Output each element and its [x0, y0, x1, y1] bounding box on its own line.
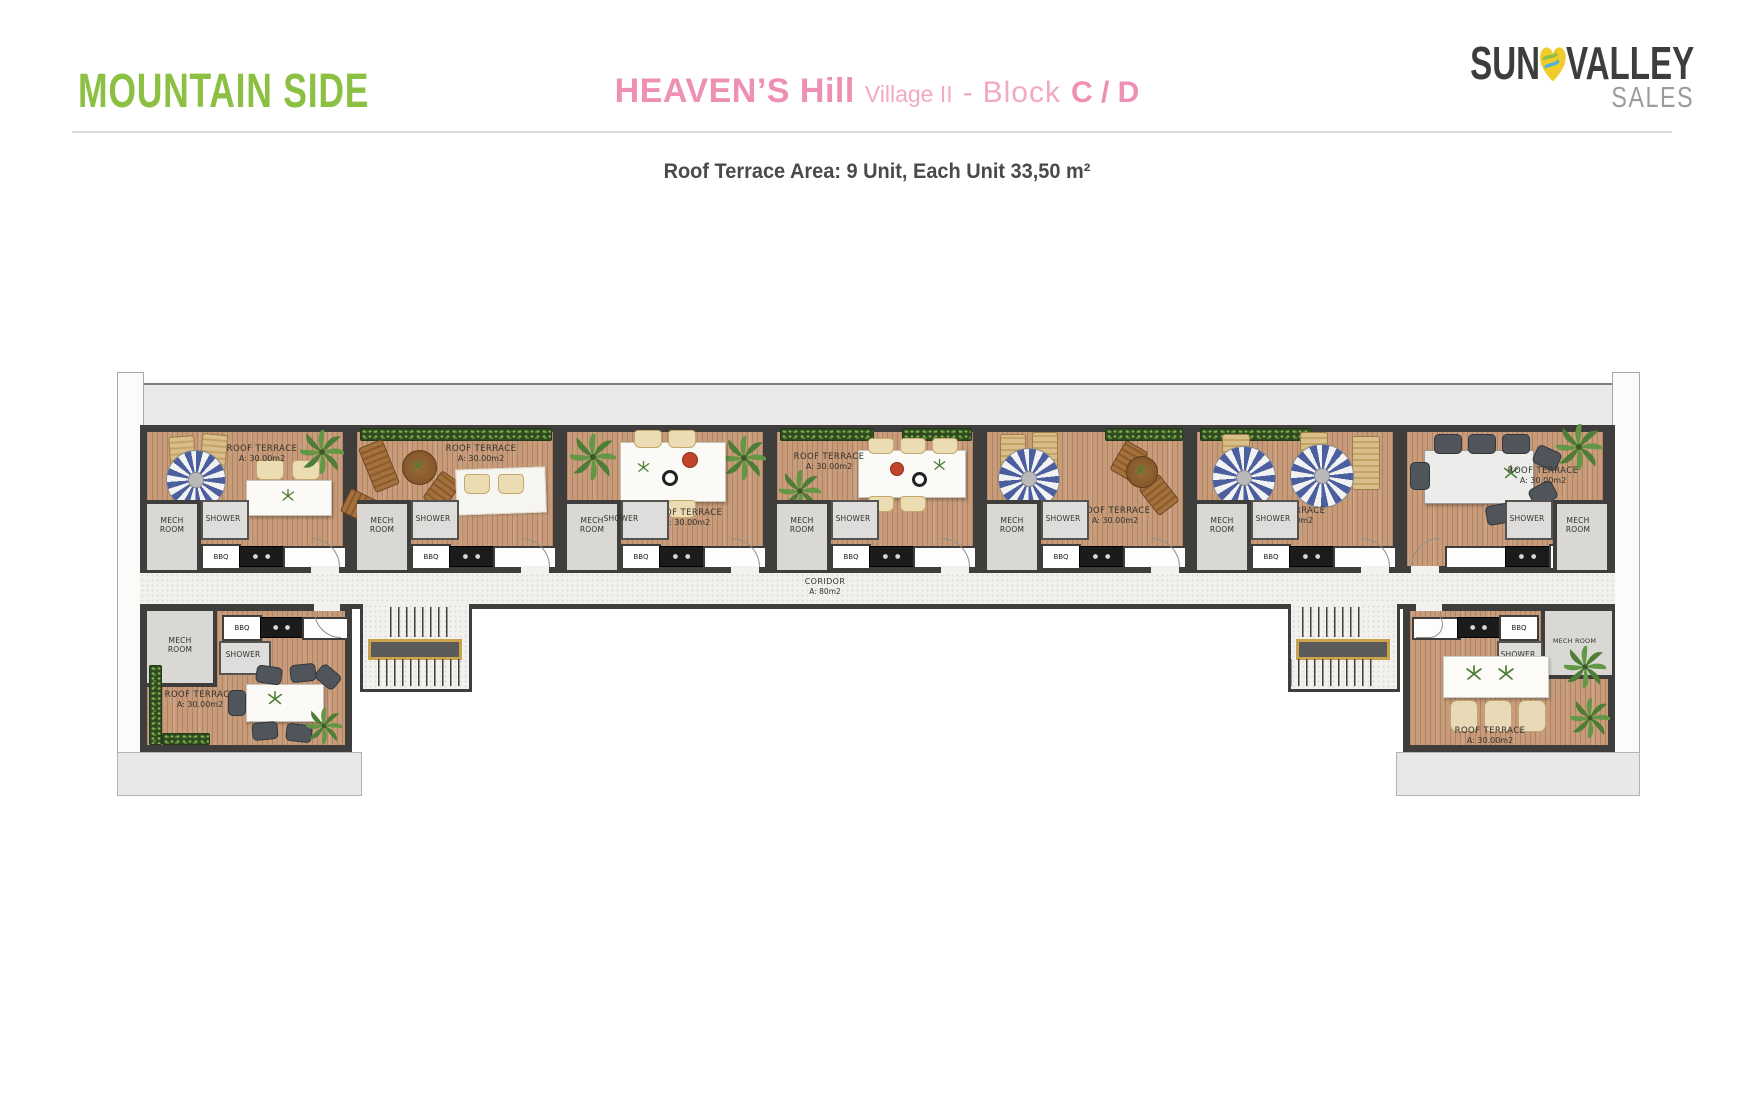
header-divider	[72, 131, 1672, 133]
stair-landing	[368, 639, 462, 660]
title-block-value: C / D	[1071, 76, 1139, 110]
corridor-bottom-wall	[466, 604, 1288, 609]
food-plate	[662, 470, 678, 486]
wall-stub-left	[352, 604, 360, 609]
shower-label: SHOWER	[593, 514, 649, 523]
door-opening	[314, 604, 340, 611]
unit-2-label: ROOF TERRACEA: 30.00m2	[421, 444, 541, 464]
mech-room-label: MECHROOM	[1199, 516, 1245, 534]
chair	[251, 721, 278, 741]
top-roof-edge	[136, 383, 1620, 428]
mech-room-label: MECHROOM	[359, 516, 405, 534]
chair	[1502, 434, 1530, 454]
mech-room-label: MECH ROOM	[1541, 638, 1608, 646]
mech-room-label: MECHROOM	[149, 636, 211, 654]
unit-9-label: ROOF TERRACEA: 30.00m2	[1430, 726, 1550, 746]
unit-4-label: ROOF TERRACEA: 30.00m2	[779, 452, 879, 472]
unit-6-mech-room	[1197, 500, 1251, 570]
heart-icon	[1536, 41, 1569, 85]
stair-flight	[390, 607, 450, 637]
unit-7-label: ROOF TERRACEA: 30.00m2	[1488, 466, 1598, 486]
door-opening	[941, 566, 969, 573]
chair	[634, 430, 662, 448]
door-opening	[1361, 566, 1389, 573]
stair-flight	[1290, 659, 1374, 686]
mech-room-label: MECHROOM	[989, 516, 1035, 534]
mech-room-label: MECHROOM	[779, 516, 825, 534]
cooktop	[659, 546, 705, 567]
cooktop	[260, 617, 304, 638]
plant-icon	[1464, 664, 1484, 684]
unit-2-bbq: BBQ	[411, 544, 451, 570]
mech-room-label: MECHROOM	[149, 516, 195, 534]
food-plate	[682, 452, 698, 468]
chair	[668, 430, 696, 448]
door-opening	[1411, 566, 1439, 573]
chair	[900, 496, 926, 512]
plant-icon	[1133, 463, 1148, 478]
unit-1-bbq: BBQ	[201, 544, 241, 570]
unit-1-label: ROOF TERRACEA: 30.00m2	[202, 444, 322, 464]
umbrella-icon	[1290, 444, 1354, 508]
shower-label: SHOWER	[1245, 514, 1301, 523]
palm-icon	[1556, 424, 1602, 470]
kitchen-counter	[1445, 546, 1509, 569]
unit-2-mech-room	[357, 500, 411, 570]
unit-3-mech-room	[567, 500, 621, 570]
mech-room-label: MECHROOM	[1555, 516, 1601, 534]
shower-label: SHOWER	[405, 514, 461, 523]
page: { "header": { "side_label": "MOUNTAIN SI…	[0, 0, 1754, 1100]
plant-icon	[932, 458, 947, 473]
stair-flight	[378, 659, 462, 686]
corridor-label: CORIDOR A: 80m2	[795, 577, 855, 596]
chair	[1410, 462, 1430, 490]
palm-icon	[570, 434, 616, 480]
shower-label: SHOWER	[212, 650, 274, 659]
stair-landing	[1296, 639, 1390, 660]
door-opening	[521, 566, 549, 573]
cooktop	[239, 546, 285, 567]
unit-6-bbq: BBQ	[1251, 544, 1291, 570]
cooktop	[1289, 546, 1335, 567]
cooktop	[1505, 546, 1551, 567]
stair-flight	[1302, 607, 1362, 637]
shower-label: SHOWER	[1499, 514, 1555, 523]
left-wing-shadow	[117, 752, 362, 796]
plant-icon	[280, 488, 296, 504]
chair	[464, 474, 490, 494]
unit-8-bbq: BBQ	[222, 615, 262, 641]
company-logo: SUN VALLEY SALES	[1383, 36, 1694, 115]
palm-icon	[722, 436, 766, 480]
plant-icon	[266, 690, 284, 708]
unit-4-mech-room	[777, 500, 831, 570]
unit-7-mech-room	[1553, 500, 1607, 570]
door-opening	[1151, 566, 1179, 573]
cooktop	[869, 546, 915, 567]
chair	[900, 438, 926, 454]
planter	[780, 428, 874, 441]
door-arc	[1416, 611, 1443, 638]
right-wing-shadow	[1396, 752, 1640, 796]
lounger	[1352, 436, 1380, 490]
unit-9-bbq: BBQ	[1499, 615, 1539, 641]
chair	[289, 663, 317, 684]
title-dash: -	[963, 76, 973, 110]
chair	[498, 474, 524, 494]
shower-label: SHOWER	[1035, 514, 1091, 523]
plan-subtitle: Roof Terrace Area: 9 Unit, Each Unit 33,…	[44, 160, 1710, 184]
title-project: HEAVEN’S Hill	[615, 72, 855, 111]
planter	[162, 733, 210, 745]
unit-1-mech-room	[147, 500, 201, 570]
door-opening	[1416, 604, 1442, 611]
planter	[1200, 428, 1312, 441]
door-opening	[731, 566, 759, 573]
title-block-word: Block	[983, 76, 1061, 110]
title-village: Village II	[865, 81, 953, 108]
unit-4-bbq: BBQ	[831, 544, 871, 570]
cooktop	[449, 546, 495, 567]
palm-icon	[1564, 646, 1606, 688]
cooktop	[1079, 546, 1125, 567]
plant-icon	[1496, 664, 1516, 684]
right-roof-edge	[1612, 372, 1640, 755]
corridor-floor	[140, 573, 1615, 604]
shower-label: SHOWER	[195, 514, 251, 523]
cooktop	[1457, 617, 1501, 638]
logo-sales-text: SALES	[1445, 82, 1694, 115]
palm-icon	[1570, 698, 1610, 738]
shower-label: SHOWER	[825, 514, 881, 523]
planter	[360, 428, 552, 441]
unit-5-mech-room	[987, 500, 1041, 570]
planter	[1105, 428, 1183, 441]
palm-icon	[306, 708, 342, 744]
chair	[1434, 434, 1462, 454]
chair	[1468, 434, 1496, 454]
plant-icon	[636, 460, 651, 475]
unit-5-bbq: BBQ	[1041, 544, 1081, 570]
chair	[228, 690, 246, 716]
unit-3-bbq: BBQ	[621, 544, 661, 570]
chair	[255, 664, 283, 685]
door-opening	[311, 566, 339, 573]
food-plate	[890, 462, 904, 476]
chair	[932, 438, 958, 454]
food-plate	[912, 472, 927, 487]
